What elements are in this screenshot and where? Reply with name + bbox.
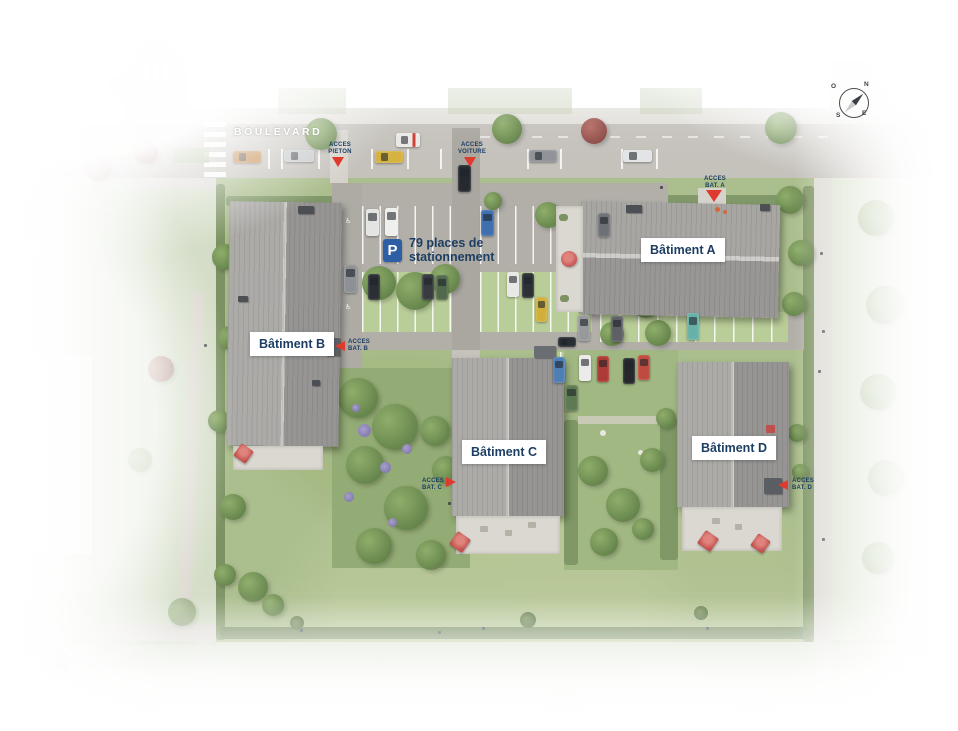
car (597, 356, 609, 382)
tree (168, 598, 196, 626)
access-bat-d-label: ACCES BAT. D (792, 478, 822, 492)
car (611, 316, 623, 342)
tree-red (40, 648, 70, 678)
tree (128, 448, 152, 472)
tree (866, 286, 904, 324)
parking-tick (281, 149, 283, 169)
roof-vent (760, 204, 770, 211)
roof-vent-orange (715, 207, 720, 212)
building-c-roof (452, 358, 564, 516)
car (481, 210, 494, 236)
path-bottom-vertical-left (196, 641, 212, 731)
car (536, 297, 547, 322)
roof-vent (312, 380, 320, 386)
pedestrian (300, 629, 303, 632)
roof-vent (298, 206, 314, 214)
sidewalk-top-vertical (124, 0, 138, 126)
terrace-planter (560, 295, 569, 302)
roof-vent (238, 296, 248, 302)
tree-purple (402, 444, 412, 454)
pedestrian (482, 627, 485, 630)
handicap-icon: ♿ (345, 304, 351, 311)
pedestrian (820, 252, 823, 255)
tree (372, 404, 418, 450)
access-bat-b-arrow-icon (335, 341, 345, 351)
parking-tick (268, 149, 270, 169)
hedge-court-west (564, 420, 578, 565)
sidewalk-right-vertical (814, 178, 832, 642)
hedge-bottom (220, 627, 812, 639)
planter-hedge (278, 88, 346, 114)
compass-south-label: S (836, 112, 840, 119)
building-c-label[interactable]: Bâtiment C (462, 440, 546, 464)
roof-vent (626, 205, 642, 213)
car (256, 6, 268, 15)
parking-tick (440, 149, 442, 169)
tree-red (134, 140, 158, 164)
access-pieton-arrow-icon (332, 157, 344, 167)
tree (492, 114, 522, 144)
planter-hedge (640, 88, 702, 114)
terrace-furniture (505, 530, 512, 536)
shrub (290, 616, 304, 630)
parking-p-icon: P (383, 239, 402, 262)
tree (416, 540, 446, 570)
tree (776, 186, 804, 214)
tree (788, 240, 814, 266)
tree (858, 200, 894, 236)
tree (782, 292, 806, 316)
tree (640, 448, 664, 472)
tree (214, 564, 236, 586)
car (598, 213, 610, 237)
tree (548, 688, 578, 718)
tree (632, 518, 654, 540)
tree-purple (358, 424, 371, 437)
tree-red (84, 154, 112, 182)
pedestrian (660, 186, 663, 189)
parking-count-label: 79 places de stationnement (409, 237, 494, 265)
tree (262, 594, 284, 616)
site-plan: ♿ ♿ (0, 0, 958, 731)
car (623, 150, 652, 162)
shrub (694, 606, 708, 620)
parking-tick (371, 149, 373, 169)
umbrella-icon (561, 251, 577, 267)
terrace-furniture (712, 518, 720, 524)
compass-north-label: N (864, 81, 869, 88)
access-bat-a-label: ACCES BAT. A (697, 176, 733, 190)
pedestrian (706, 627, 709, 630)
car (558, 337, 576, 347)
tree (862, 542, 894, 574)
roof-vent-orange (723, 210, 727, 214)
access-voiture-label: ACCES VOITURE (454, 142, 490, 156)
handicap-icon: ♿ (345, 218, 351, 225)
tree (740, 698, 770, 728)
car (884, 30, 896, 52)
road-boulevard-faded (0, 124, 60, 178)
car (553, 357, 565, 383)
building-c-entry-canopy (534, 346, 556, 358)
parking-p-letter: P (387, 242, 397, 259)
tree-red (581, 118, 607, 144)
building-west-faded (0, 355, 92, 555)
car (368, 274, 380, 300)
terrace-furniture (528, 522, 536, 528)
car (422, 274, 434, 300)
parking-tick (318, 149, 320, 169)
compass: O N S E (828, 78, 876, 126)
access-bat-a-arrow-icon (706, 190, 722, 202)
car (436, 275, 448, 300)
building-b-roof (226, 201, 341, 447)
car (579, 355, 591, 381)
tree (356, 528, 392, 564)
tree (578, 456, 608, 486)
access-bat-d-arrow-icon (778, 480, 788, 490)
tree-purple (380, 462, 391, 473)
car (233, 151, 261, 163)
car (638, 355, 650, 380)
tree (868, 460, 904, 496)
path-court (578, 416, 662, 424)
parking-tick (656, 149, 658, 169)
parcel-bottom-left (240, 652, 640, 731)
tree-purple (388, 518, 397, 527)
access-bat-c-arrow-icon (446, 477, 456, 487)
building-a-label[interactable]: Bâtiment A (641, 238, 725, 262)
tree (606, 488, 640, 522)
tree (656, 408, 676, 428)
access-voiture-arrow-icon (464, 157, 476, 167)
car (366, 209, 379, 236)
planter-hedge (448, 88, 572, 114)
sidewalk-top-vertical (174, 0, 187, 126)
tree (590, 528, 618, 556)
tree (346, 446, 384, 484)
tree (132, 690, 158, 716)
car (284, 150, 314, 162)
pedestrian (204, 344, 207, 347)
planter-hedge (896, 86, 958, 114)
pedestrian (822, 538, 825, 541)
car (375, 151, 403, 163)
tree (420, 416, 450, 446)
terrace-furniture (480, 526, 488, 532)
tree-purple (352, 404, 360, 412)
access-pieton-label: ACCES PIETON (322, 142, 358, 156)
building-b-label[interactable]: Bâtiment B (250, 332, 334, 356)
access-bat-b-label: ACCES BAT. B (348, 339, 378, 353)
pedestrian (438, 631, 441, 634)
pedestrian (822, 330, 825, 333)
parking-tick (407, 149, 409, 169)
tree (645, 320, 671, 346)
car (385, 208, 398, 236)
car (623, 358, 635, 384)
tree (220, 494, 246, 520)
car (344, 265, 357, 293)
shrub (520, 612, 536, 628)
car (565, 385, 578, 411)
car (687, 313, 699, 340)
tree (338, 378, 378, 418)
roof-vent-red (766, 425, 775, 433)
parking-tick (560, 149, 562, 169)
boulevard-label: BOULEVARD (234, 126, 322, 138)
car (458, 165, 471, 192)
planter-hedge (173, 148, 209, 163)
garden-table (600, 430, 606, 436)
tree-red (148, 356, 174, 382)
terrace-furniture (735, 524, 742, 530)
food-truck (396, 133, 420, 147)
zebra-crossing-top (143, 62, 171, 84)
compass-east-label: E (862, 110, 866, 117)
building-d-label[interactable]: Bâtiment D (692, 436, 776, 460)
car (87, 126, 113, 137)
tree (765, 112, 797, 144)
car (529, 150, 557, 162)
compass-west-label: O (831, 83, 836, 90)
terrace-planter (559, 214, 568, 221)
car (522, 273, 534, 298)
path-bottom-vertical-right (815, 641, 831, 731)
car (507, 272, 519, 297)
tree (484, 192, 502, 210)
pedestrian (818, 370, 821, 373)
hedge-court-east (660, 418, 678, 560)
tree-purple (344, 492, 354, 502)
tree (108, 76, 130, 98)
tree (788, 424, 806, 442)
car (578, 315, 590, 341)
pedestrian (448, 502, 451, 505)
tree (860, 374, 896, 410)
